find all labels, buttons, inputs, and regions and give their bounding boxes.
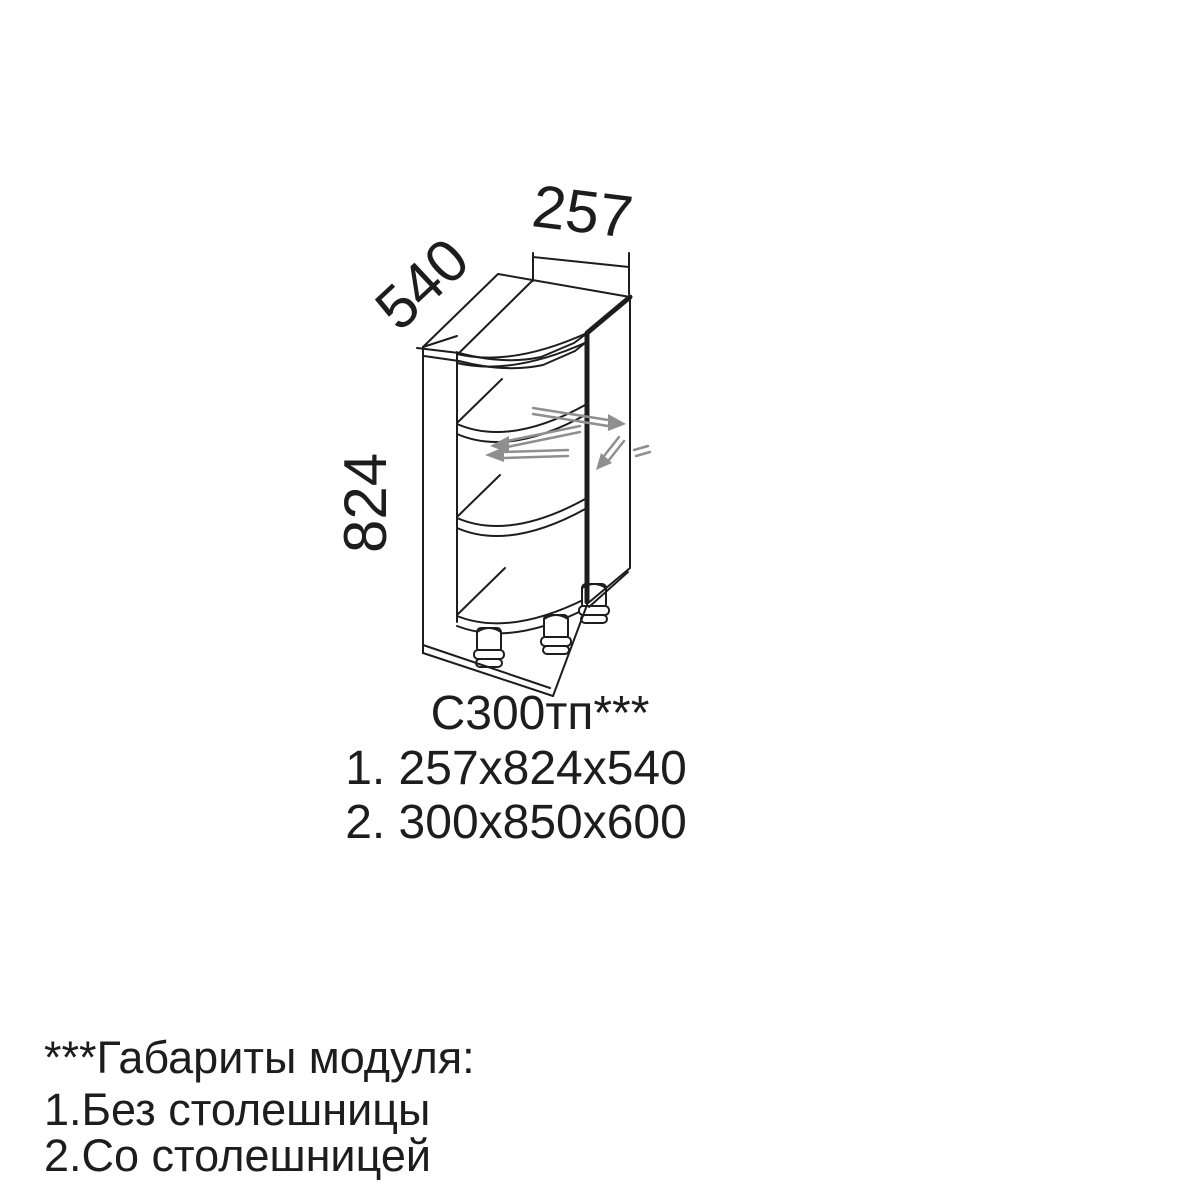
shelf-adjust-arrows bbox=[485, 408, 650, 470]
foot-left bbox=[474, 628, 504, 667]
footnote-item-1: 1.Без столешницы bbox=[44, 1085, 430, 1135]
worktop-inner-edge bbox=[459, 280, 533, 353]
model-code: С300тп*** bbox=[431, 688, 650, 741]
dim-label-height: 824 bbox=[332, 453, 399, 553]
size-option-1: 1. 257x824x540 bbox=[345, 743, 687, 796]
dim-label-width: 257 bbox=[529, 172, 637, 251]
cabinet-shelves bbox=[457, 333, 587, 633]
dim-label-depth: 540 bbox=[363, 225, 482, 342]
arrow-right-icon bbox=[533, 408, 626, 431]
catalog-page: 257 540 824 bbox=[0, 0, 1200, 1204]
worktop-thickness-edge bbox=[424, 343, 585, 368]
footnote-title: ***Габариты модуля: bbox=[44, 1033, 475, 1083]
cabinet-outline bbox=[417, 274, 630, 696]
dimension-line bbox=[533, 257, 629, 267]
arrow-left-lower-icon bbox=[485, 447, 568, 462]
furniture-diagram: 257 540 824 bbox=[0, 0, 1200, 1204]
foot-middle bbox=[541, 615, 571, 654]
footnote-item-2: 2.Со столешницей bbox=[44, 1131, 431, 1181]
arrow-down-icon bbox=[596, 437, 650, 470]
size-option-2: 2. 300x850x600 bbox=[345, 797, 687, 850]
